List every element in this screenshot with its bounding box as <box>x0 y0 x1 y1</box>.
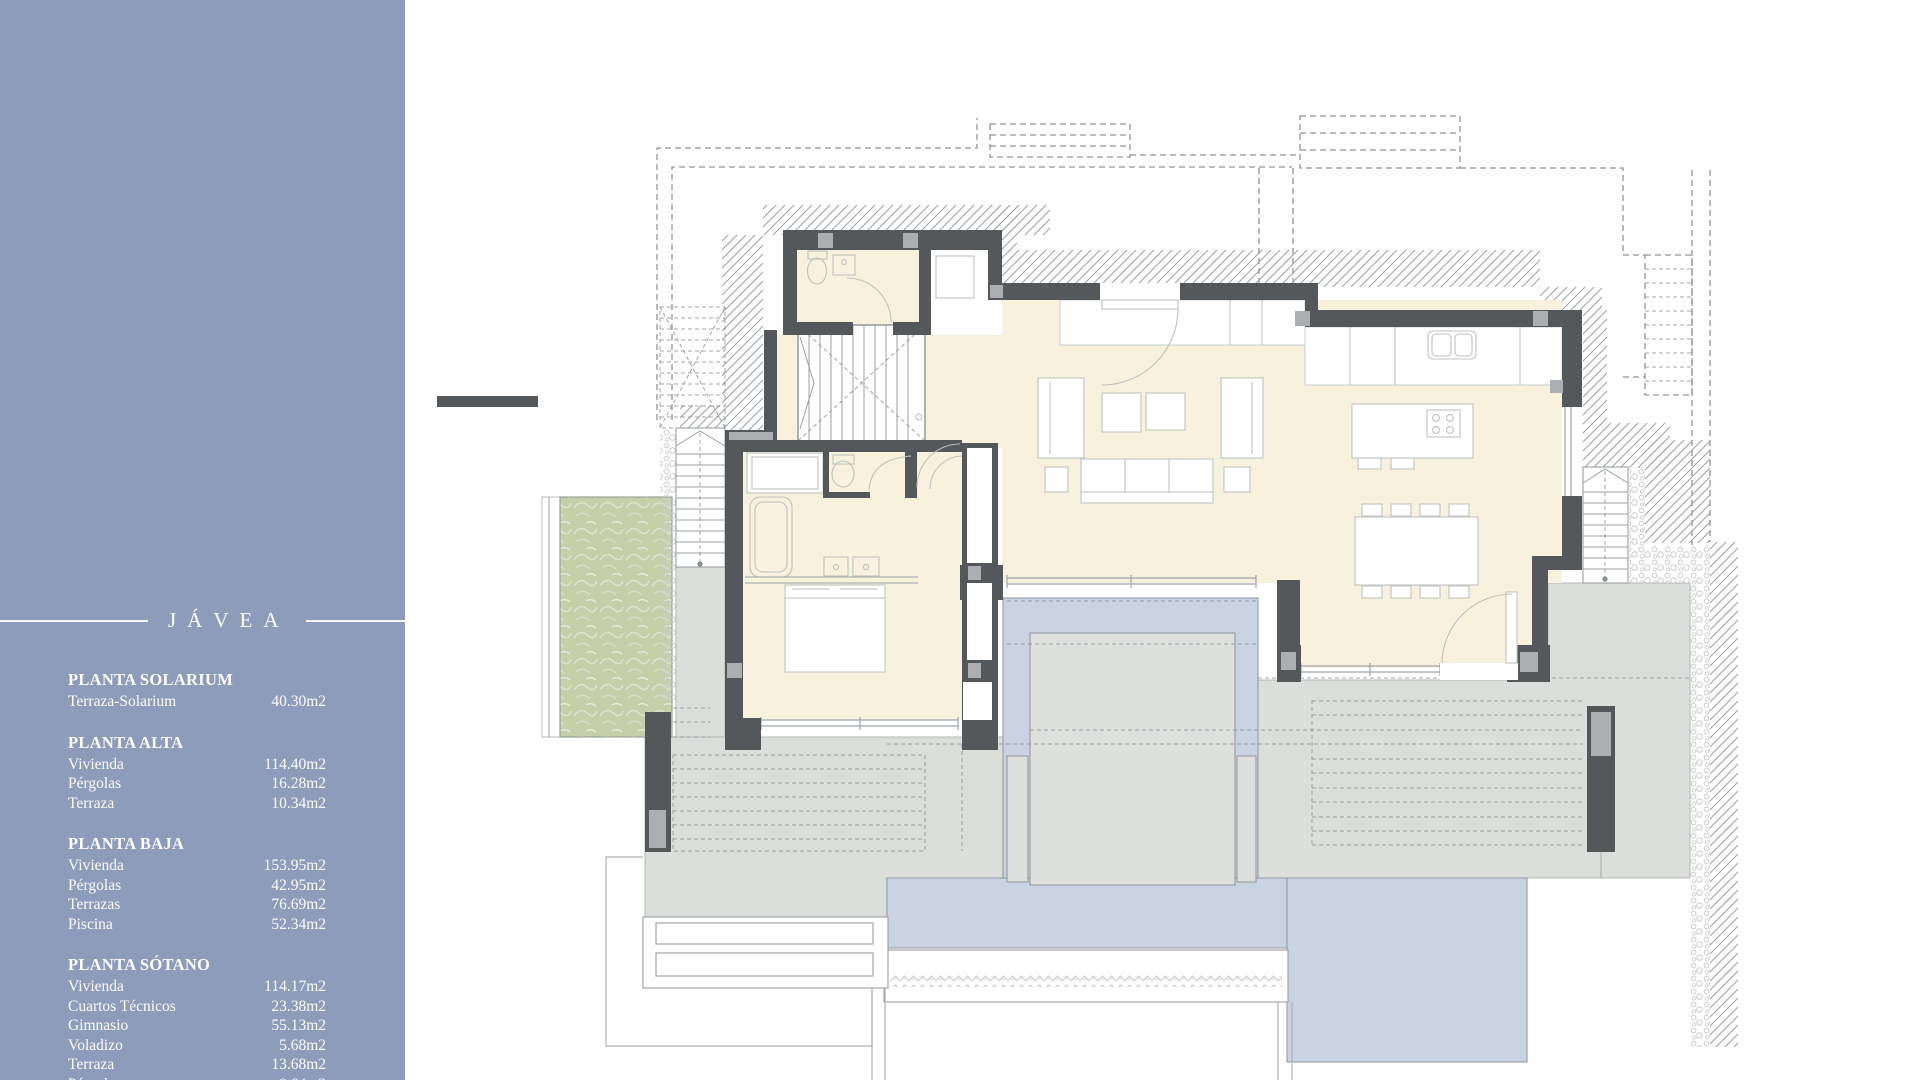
area-row: Gimnasio 55.13m2 <box>68 1016 326 1036</box>
section-heading: PLANTA ALTA <box>68 733 326 753</box>
area-row: Vivienda 153.95m2 <box>68 856 326 876</box>
section-heading: PLANTA BAJA <box>68 834 326 854</box>
area-value: 40.30m2 <box>271 692 326 712</box>
brand: JÁVEA <box>0 608 405 633</box>
pool-platform <box>1030 633 1235 885</box>
area-label: Terraza-Solarium <box>68 692 176 712</box>
area-row: Vivienda 114.40m2 <box>68 755 326 775</box>
area-row: Terrazas 76.69m2 <box>68 895 326 915</box>
area-label: Terraza <box>68 794 114 814</box>
area-value: 13.68m2 <box>271 1055 326 1075</box>
coffee-table <box>1146 393 1185 430</box>
exterior-step <box>656 953 873 976</box>
entry-closet <box>931 250 977 325</box>
area-label: Piscina <box>68 915 113 935</box>
area-row: Voladizo 5.68m2 <box>68 1036 326 1056</box>
page-title: JÁVEA <box>168 608 290 633</box>
section-heading: PLANTA SÓTANO <box>68 955 326 975</box>
shower <box>747 453 823 493</box>
area-label: Cuartos Técnicos <box>68 997 176 1017</box>
area-label: Terraza <box>68 1055 114 1075</box>
area-value: 5.68m2 <box>279 1036 326 1056</box>
coffee-table <box>1102 393 1141 432</box>
area-row: Pérgolas 42.95m2 <box>68 876 326 896</box>
terrace-door <box>1506 592 1517 663</box>
area-value: 10.34m2 <box>271 794 326 814</box>
area-value: 23.38m2 <box>271 997 326 1017</box>
area-value: 153.95m2 <box>264 856 326 876</box>
area-row: Terraza-Solarium 40.30m2 <box>68 692 326 712</box>
area-summary: PLANTA SOLARIUM Terraza-Solarium 40.30m2… <box>68 670 326 1080</box>
area-row: Pérgola 9.64m2 <box>68 1075 326 1080</box>
area-section-solarium: PLANTA SOLARIUM Terraza-Solarium 40.30m2 <box>68 670 326 712</box>
area-row: Pérgolas 16.28m2 <box>68 774 326 794</box>
area-section-baja: PLANTA BAJA Vivienda 153.95m2 Pérgolas 4… <box>68 834 326 934</box>
perimeter-wall <box>437 396 538 407</box>
armchair <box>1038 378 1084 458</box>
area-value: 42.95m2 <box>271 876 326 896</box>
area-label: Terrazas <box>68 895 120 915</box>
area-label: Pérgola <box>68 1075 115 1080</box>
kitchen-counter <box>1305 327 1562 385</box>
area-value: 16.28m2 <box>271 774 326 794</box>
area-row: Terraza 10.34m2 <box>68 794 326 814</box>
area-value: 52.34m2 <box>271 915 326 935</box>
green-area <box>560 497 672 737</box>
area-row: Terraza 13.68m2 <box>68 1055 326 1075</box>
page: JÁVEA PLANTA SOLARIUM Terraza-Solarium 4… <box>0 0 1920 1080</box>
kitchen-island <box>1352 404 1473 458</box>
area-value: 9.64m2 <box>279 1075 326 1080</box>
armchair <box>1221 378 1263 458</box>
sidebar: JÁVEA PLANTA SOLARIUM Terraza-Solarium 4… <box>0 0 405 1080</box>
area-value: 114.40m2 <box>264 755 326 775</box>
area-row: Vivienda 114.17m2 <box>68 977 326 997</box>
area-label: Pérgolas <box>68 774 121 794</box>
brand-rule-left <box>0 620 148 622</box>
section-heading: PLANTA SOLARIUM <box>68 670 326 690</box>
interior-staircase <box>798 325 925 441</box>
sofa <box>1081 459 1213 503</box>
brand-rule-right <box>306 620 406 622</box>
area-label: Vivienda <box>68 977 124 997</box>
area-label: Pérgolas <box>68 876 121 896</box>
area-label: Vivienda <box>68 755 124 775</box>
area-section-sotano: PLANTA SÓTANO Vivienda 114.17m2 Cuartos … <box>68 955 326 1080</box>
area-value: 114.17m2 <box>264 977 326 997</box>
area-value: 55.13m2 <box>271 1016 326 1036</box>
garden <box>542 430 676 737</box>
dining-area <box>1355 504 1478 598</box>
exterior-step <box>656 923 873 944</box>
area-section-alta: PLANTA ALTA Vivienda 114.40m2 Pérgolas 1… <box>68 733 326 814</box>
area-label: Vivienda <box>68 856 124 876</box>
entry-door <box>1102 300 1178 309</box>
area-label: Voladizo <box>68 1036 123 1056</box>
area-label: Gimnasio <box>68 1016 128 1036</box>
area-row: Piscina 52.34m2 <box>68 915 326 935</box>
dining-table <box>1355 517 1478 585</box>
area-row: Cuartos Técnicos 23.38m2 <box>68 997 326 1017</box>
area-value: 76.69m2 <box>271 895 326 915</box>
